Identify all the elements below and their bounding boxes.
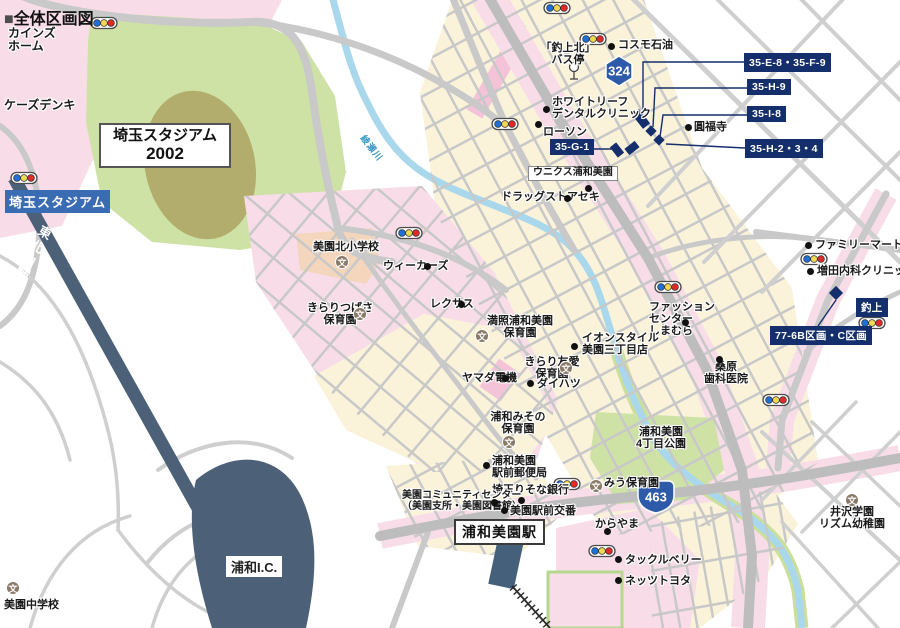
- lawson: ローソン: [543, 127, 587, 139]
- lexus-dot: [458, 301, 465, 308]
- unics-urawamisono: ウニクス浦和美園: [528, 166, 618, 181]
- label-layer: ■全体区画図 埼玉スタジアム 2002 埼玉スタジアム 浦和美園駅 浦和I.C.…: [0, 0, 900, 628]
- parcel-label-35-e8-f9: 35-E-8・35-F-9: [744, 53, 831, 72]
- enpukuji-temple: 圓福寺: [694, 122, 727, 134]
- whiteleaf-dental: ホワイトリーフデンタルクリニック: [552, 97, 651, 121]
- cosmo-sekiyu: コスモ石油: [618, 40, 673, 52]
- wee-cars: ウィーカーズ: [383, 261, 448, 273]
- expressway-label: 東北自動車道: [0, 221, 56, 314]
- urawa-misono-hoikuen: 浦和みその保育園: [488, 412, 548, 436]
- familymart: ファミリーマート: [815, 240, 900, 252]
- parcel-label-35-h9: 35-H-9: [747, 79, 791, 95]
- aeon-style-misono-dot: [571, 343, 578, 350]
- izawa-rhythm-kindergarten: 井沢学園リズム幼稚園: [818, 507, 886, 531]
- masuda-naika-clinic-dot: [807, 268, 814, 275]
- lexus: レクサス: [430, 299, 474, 311]
- karayama-dot: [604, 528, 611, 535]
- river-label: 綾瀬川: [358, 132, 387, 164]
- urawa-ic-label: 浦和I.C.: [226, 556, 282, 577]
- tackle-berry: タックルベリー: [625, 555, 702, 567]
- drugstore-seki: ドラッグストアセキ: [501, 192, 600, 204]
- tackle-berry-dot: [615, 556, 622, 563]
- misono-ekimae-koban-dot: [501, 507, 508, 514]
- daihatsu: ダイハツ: [537, 379, 581, 391]
- ekimae-post-office: 浦和美園駅前郵便局: [492, 456, 547, 480]
- parcel-label-35-i8: 35-I-8: [747, 106, 786, 122]
- school-icon: 文: [353, 307, 367, 321]
- cosmo-sekiyu-dot: [608, 43, 615, 50]
- fashion-center-shimamura-dot: [682, 319, 689, 326]
- parcel-label-77-6b-c: 77-6B区画・C区画: [770, 326, 872, 345]
- ekimae-post-office-dot: [483, 462, 490, 469]
- school-icon: 文: [335, 255, 349, 269]
- parcel-label-35-g1: 35-G-1: [550, 139, 594, 155]
- school-icon: 文: [502, 435, 516, 449]
- misono-4chome-park: 浦和美園4丁目公園: [632, 427, 690, 451]
- netz-toyota-dot: [615, 577, 622, 584]
- cainz-home: カインズホーム: [8, 27, 56, 53]
- map-canvas: 324463 ■全体区画図 埼玉スタジアム 2002 埼玉スタジアム 浦和美園駅…: [0, 0, 900, 628]
- school-icon: 文: [845, 493, 859, 507]
- yamada-denki: ヤマダ電機: [462, 373, 517, 385]
- kuwahara-dental-clinic-dot: [716, 356, 723, 363]
- misono-community-center-dot: [491, 499, 498, 506]
- saitama-stadium-2002-label: 埼玉スタジアム 2002: [99, 123, 231, 168]
- school-icon: 文: [589, 479, 603, 493]
- yamada-denki-dot: [502, 375, 509, 382]
- misono-junior-high: 美園中学校: [4, 600, 59, 612]
- drugstore-seki-dot: [564, 195, 571, 202]
- kuwahara-dental-clinic: 桑原歯科医院: [701, 362, 751, 386]
- urawa-misono-station-label: 浦和美園駅: [454, 519, 545, 545]
- lawson-dot: [535, 121, 542, 128]
- school-icon: 文: [559, 361, 573, 375]
- tsuriagekita-bus-stop: 「釣上北」バス停: [540, 43, 596, 67]
- school-icon: 文: [6, 581, 20, 595]
- mansho-urawamisono-hoikuen: 満照浦和美園保育園: [486, 316, 554, 340]
- karayama: からやま: [595, 519, 639, 531]
- saitama-stadium-tag: 埼玉スタジアム: [5, 190, 110, 213]
- daihatsu-dot: [527, 380, 534, 387]
- place-label-tsuriage: 釣上: [856, 298, 888, 317]
- miu-hoikuen: みう保育園: [604, 478, 659, 490]
- parcel-label-35-h234: 35-H-2・3・4: [745, 139, 823, 158]
- whiteleaf-dental-dot: [543, 106, 550, 113]
- misono-ekimae-koban: 美園駅前交番: [510, 506, 576, 518]
- school-icon: 文: [475, 329, 489, 343]
- netz-toyota: ネッツトヨタ: [625, 576, 691, 588]
- masuda-naika-clinic: 増田内科クリニック: [817, 266, 900, 278]
- misonokita-elementary: 美園北小学校: [313, 242, 379, 254]
- wee-cars-dot: [424, 263, 431, 270]
- ks-denki: ケーズデンキ: [4, 99, 75, 112]
- aeon-style-misono: イオンスタイル美園三丁目店: [582, 333, 659, 357]
- familymart-dot: [805, 242, 812, 249]
- enpukuji-temple-dot: [685, 124, 692, 131]
